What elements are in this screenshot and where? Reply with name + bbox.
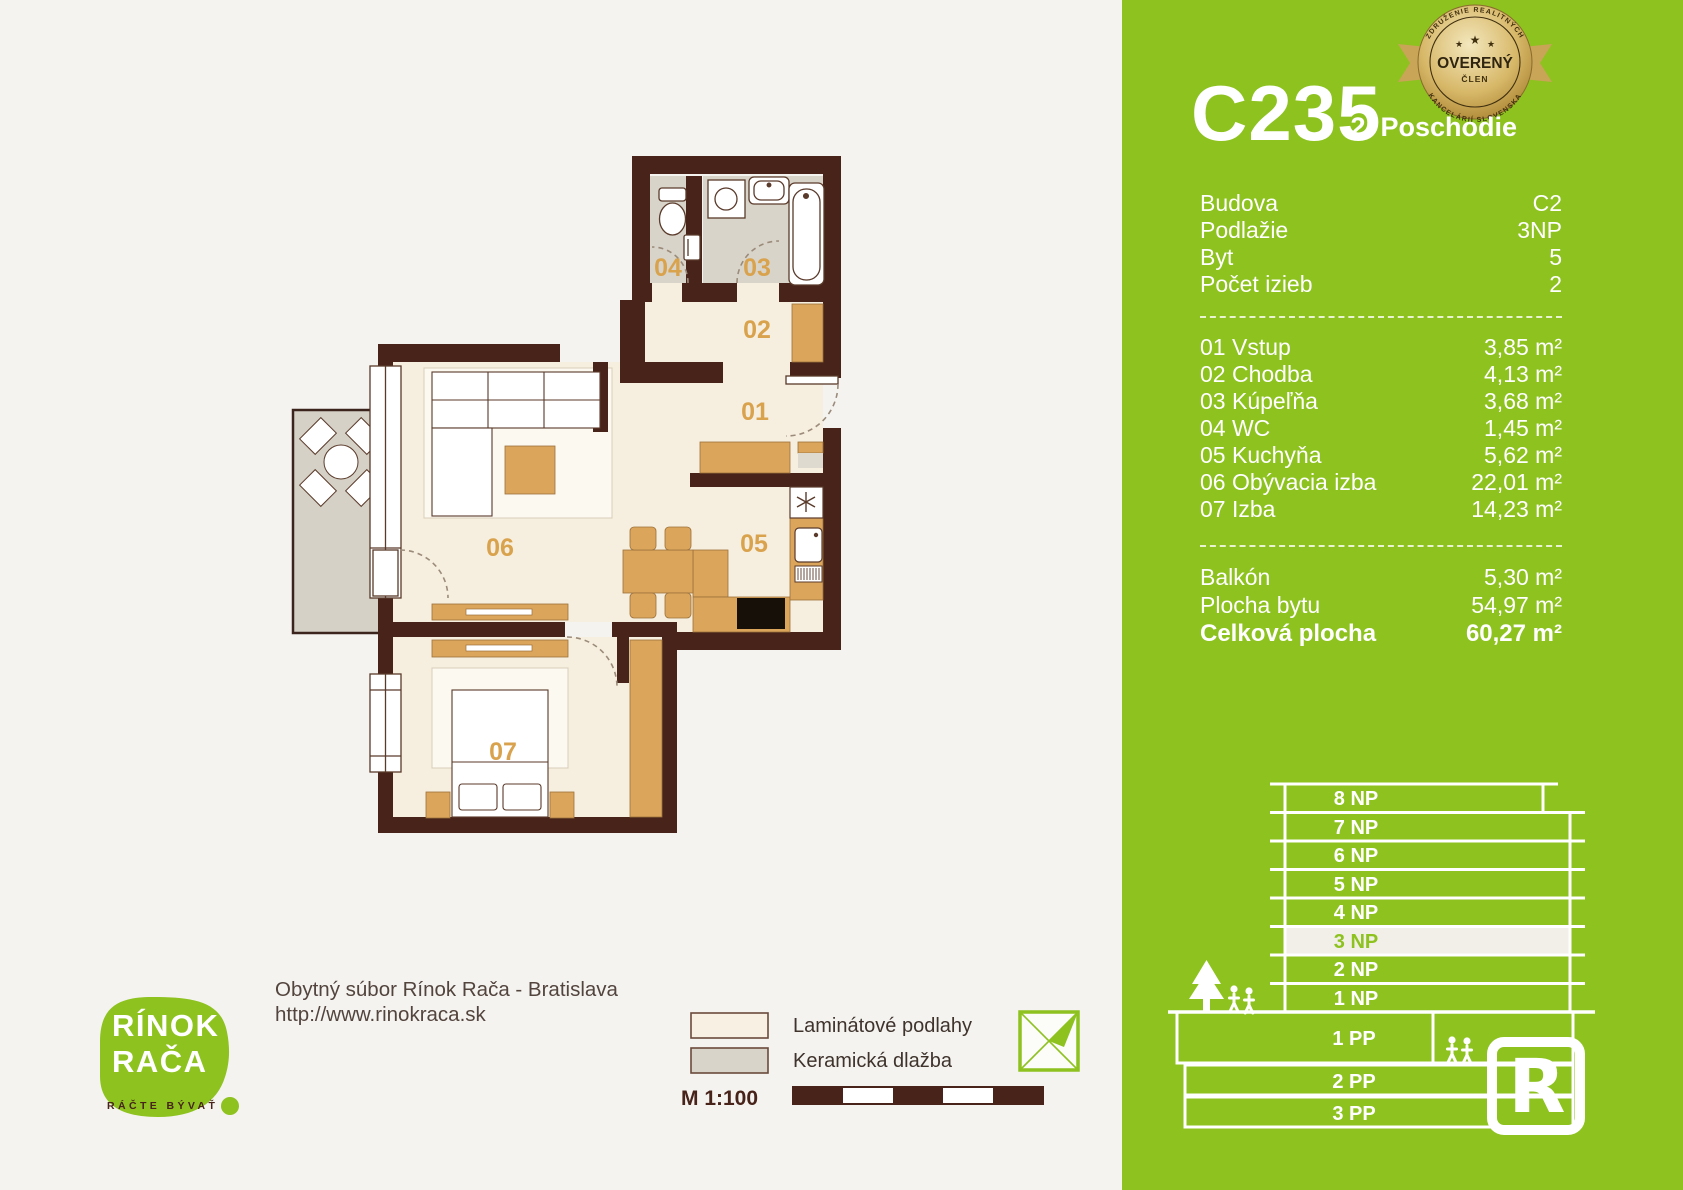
- info-row: Podlažie3NP: [1200, 217, 1562, 244]
- total-row: Plocha bytu54,97 m²: [1200, 591, 1562, 619]
- floor-plan: 04 03 02 01 05 06 07: [293, 156, 841, 833]
- room-row: 07 Izba14,23 m²: [1200, 496, 1562, 523]
- dishwasher-icon: [795, 566, 822, 582]
- coffee-table: [505, 446, 555, 494]
- kitchen-counter: [693, 550, 728, 597]
- nightstand: [550, 792, 574, 818]
- dashed-separator: [1200, 545, 1562, 547]
- room-row: 01 Vstup3,85 m²: [1200, 334, 1562, 361]
- bathtub-icon: [789, 183, 824, 285]
- logo-word-2: RAČA: [112, 1044, 208, 1080]
- orientation-icon: [1020, 1012, 1078, 1070]
- tree-icon: [1189, 960, 1224, 1012]
- flyer-page: 04 03 02 01 05 06 07 ZDRUŽENIE: [0, 0, 1683, 1190]
- badge-title: OVERENÝ: [1437, 54, 1513, 72]
- room-label-06: 06: [486, 534, 514, 562]
- svg-text:2 NP: 2 NP: [1334, 959, 1378, 981]
- svg-text:6 NP: 6 NP: [1334, 845, 1378, 867]
- certified-badge: ZDRUŽENIE REALITNÝCH KANCELÁRIÍ SLOVENSK…: [1398, 5, 1552, 124]
- room-label-05: 05: [740, 530, 768, 558]
- room-label-02: 02: [743, 316, 771, 344]
- logo-word-1: RÍNOK: [112, 1008, 219, 1044]
- dashed-separator: [1200, 316, 1562, 318]
- scale-label: M 1:100: [681, 1087, 758, 1111]
- highlighted-floor: [1285, 927, 1570, 956]
- dining-chair: [630, 527, 656, 550]
- scale-bar: [793, 1087, 1043, 1104]
- svg-text:4 NP: 4 NP: [1334, 902, 1378, 924]
- legend-label-laminate: Laminátové podlahy: [793, 1015, 972, 1038]
- info-row: BudovaC2: [1200, 190, 1562, 217]
- room-row: 05 Kuchyňa5,62 m²: [1200, 442, 1562, 469]
- project-name: Obytný súbor Rínok Rača - Bratislava: [275, 977, 618, 1002]
- legend-label-tile: Keramická dlažba: [793, 1050, 952, 1073]
- dining-chair: [665, 527, 691, 550]
- floor-label: 2. Poschodie: [1317, 112, 1517, 143]
- info-row: Počet izieb2: [1200, 271, 1562, 298]
- svg-text:R: R: [1509, 1044, 1566, 1130]
- svg-text:★: ★: [1470, 33, 1481, 47]
- dining-chair: [630, 593, 656, 618]
- legend-swatches: [691, 1013, 768, 1073]
- project-url[interactable]: http://www.rinokraca.sk: [275, 1003, 486, 1026]
- svg-text:5 NP: 5 NP: [1334, 874, 1378, 896]
- svg-text:2 PP: 2 PP: [1332, 1071, 1375, 1093]
- svg-text:3 PP: 3 PP: [1332, 1103, 1375, 1125]
- stove: [737, 598, 785, 629]
- highlighted-floor-label: 3 NP: [1334, 931, 1378, 953]
- svg-text:★: ★: [1487, 39, 1495, 49]
- entry-door-leaf: [786, 376, 838, 384]
- wc-sink-icon: [684, 235, 700, 260]
- total-row: Balkón5,30 m²: [1200, 563, 1562, 591]
- laminate-swatch: [691, 1013, 768, 1038]
- bath-sink-icon: [749, 177, 789, 204]
- dining-chair: [665, 593, 691, 618]
- svg-text:★: ★: [1455, 39, 1463, 49]
- info-row: Byt5: [1200, 244, 1562, 271]
- room-row: 06 Obývacia izba22,01 m²: [1200, 469, 1562, 496]
- developer-mark: R: [1492, 1042, 1580, 1130]
- badge-subtitle: ČLEN: [1461, 73, 1488, 84]
- room-label-03: 03: [743, 254, 771, 282]
- tile-swatch: [691, 1048, 768, 1073]
- room-row: 03 Kúpeľňa3,68 m²: [1200, 388, 1562, 415]
- bedroom-wardrobe: [630, 640, 662, 817]
- fridge-icon: [790, 487, 823, 518]
- bedroom-window: [370, 674, 401, 772]
- building-section: 8 NP 7 NP 6 NP 5 NP 4 NP 3 NP 2 NP 1 NP …: [1168, 784, 1595, 1130]
- totals-table: Balkón5,30 m² Plocha bytu54,97 m² Celkov…: [1200, 563, 1562, 648]
- toilet-icon: [659, 188, 686, 235]
- project-description: Obytný súbor Rínok Rača - Bratislava htt…: [275, 977, 618, 1027]
- logo-tagline: RÁČTE BÝVAŤ: [107, 1100, 218, 1112]
- room-row: 02 Chodba4,13 m²: [1200, 361, 1562, 388]
- kitchen-sink-icon: [795, 528, 822, 562]
- svg-text:1 NP: 1 NP: [1334, 988, 1378, 1010]
- balcony-window: [370, 366, 401, 598]
- nightstand: [426, 792, 450, 818]
- room-row: 04 WC1,45 m²: [1200, 415, 1562, 442]
- room-label-04: 04: [654, 254, 682, 282]
- room-label-07: 07: [489, 738, 517, 766]
- svg-text:8 NP: 8 NP: [1334, 788, 1378, 810]
- room-area-table: 01 Vstup3,85 m² 02 Chodba4,13 m² 03 Kúpe…: [1200, 334, 1562, 523]
- svg-text:7 NP: 7 NP: [1334, 817, 1378, 839]
- washing-machine-icon: [708, 180, 745, 218]
- total-row-grand: Celková plocha60,27 m²: [1200, 619, 1562, 648]
- svg-text:1 PP: 1 PP: [1332, 1028, 1375, 1050]
- shoe-cabinet: [700, 442, 790, 473]
- dining-table: [623, 550, 693, 593]
- room-label-01: 01: [741, 398, 769, 426]
- hall-wardrobe: [792, 304, 823, 362]
- unit-info-table: BudovaC2 Podlažie3NP Byt5 Počet izieb2: [1200, 190, 1562, 298]
